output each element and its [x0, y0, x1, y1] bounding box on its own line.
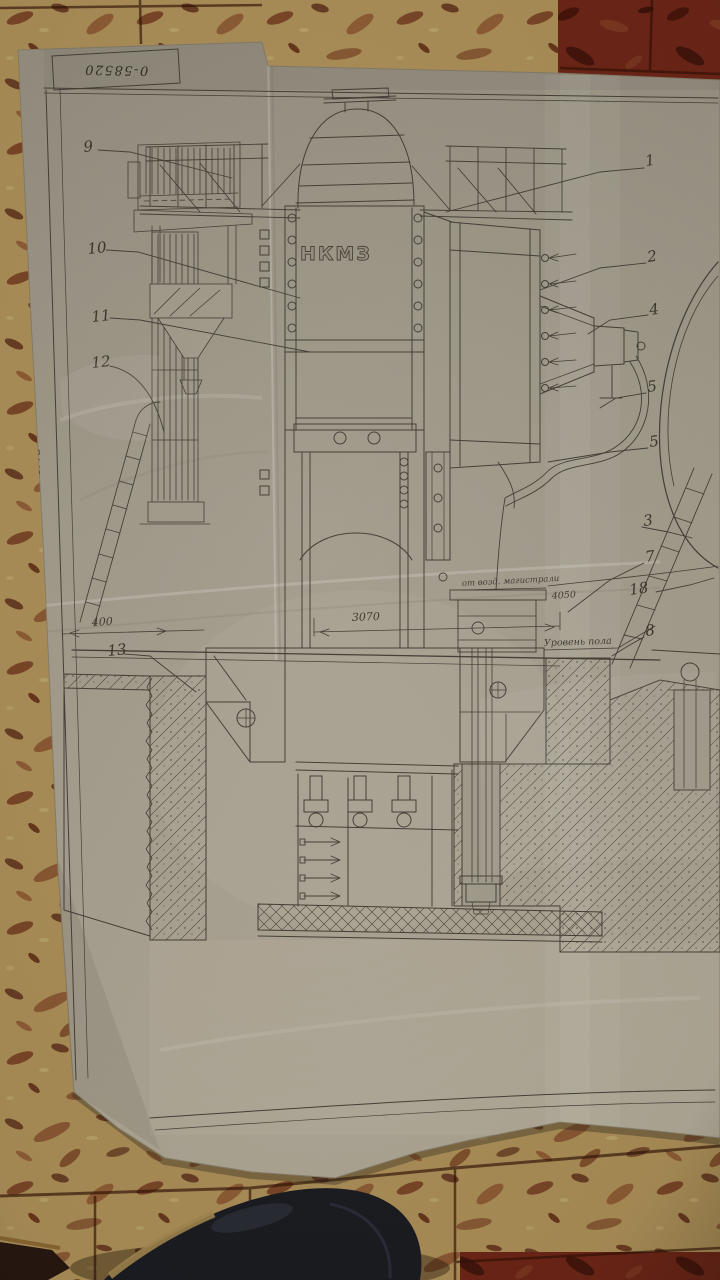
photo-of-blueprint-on-floor: 0-58520 НКМЗ 4775 от возд. магистрали 40… — [0, 0, 720, 1280]
photo-canvas: 0-58520 НКМЗ 4775 от возд. магистрали 40… — [0, 0, 720, 1280]
photo-tint — [0, 0, 720, 1280]
